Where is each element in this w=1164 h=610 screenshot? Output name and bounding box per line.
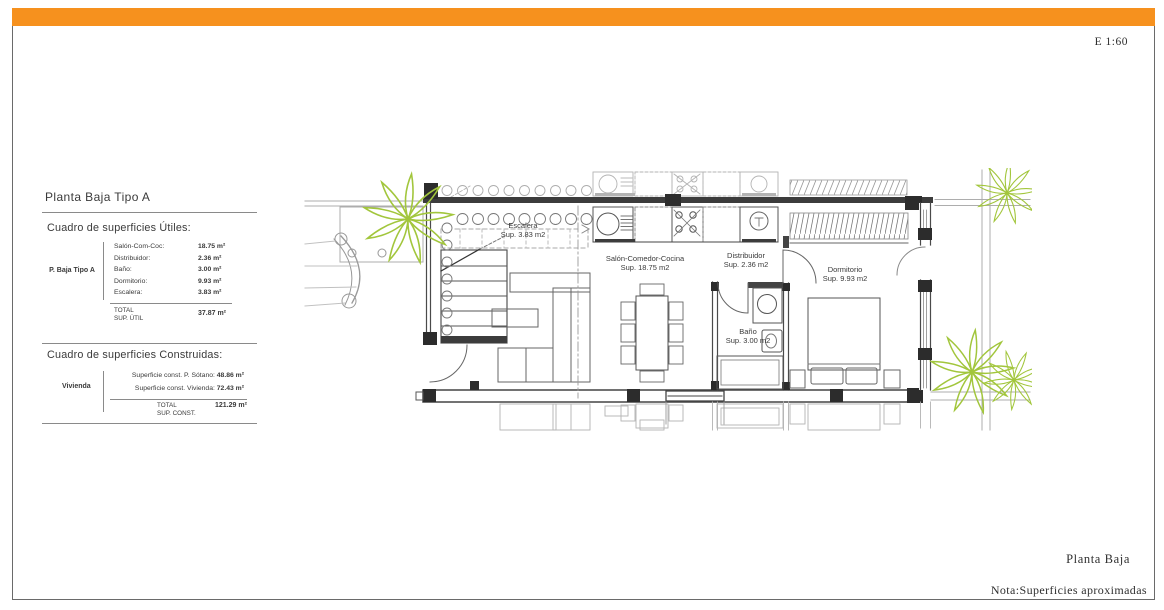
- built-areas-heading: Cuadro de superficies Construidas:: [47, 349, 222, 361]
- plant-icon: [931, 330, 1014, 414]
- row-value: 3.00 m²: [198, 266, 221, 273]
- total-subword: SUP. ÚTIL: [114, 315, 143, 323]
- total-label: TOTAL SUP. ÚTIL: [114, 307, 143, 322]
- built-areas-table: Vivienda Superficie const. P. Sótano: 48…: [42, 370, 252, 397]
- divider: [42, 343, 257, 344]
- table-row: Salón-Com-Coc: 18.75 m²: [114, 243, 252, 255]
- divider: [42, 423, 257, 424]
- total-subword: SUP. CONST.: [157, 410, 196, 418]
- total-word: TOTAL: [157, 402, 196, 410]
- plant-icon: [976, 162, 1038, 224]
- neighbor-unit-above: [442, 172, 907, 197]
- table-row: Superficie const. P. Sótano: 48.86 m²: [114, 372, 244, 385]
- drawing-sheet: E 1:60: [0, 0, 1164, 610]
- table-row: Superficie const. Vivienda: 72.43 m²: [114, 385, 244, 398]
- room-area: Sup. 3.83 m2: [453, 230, 593, 239]
- room-area: Sup. 3.00 m2: [678, 336, 818, 345]
- row-label: Escalera:: [114, 289, 198, 296]
- row-label: Baño:: [114, 266, 198, 273]
- row-value: 3.83 m²: [198, 289, 221, 296]
- total-value: 37.87 m²: [198, 310, 226, 317]
- row-label: Superficie const. P. Sótano:: [132, 372, 215, 379]
- room-name: Escalera: [453, 221, 593, 230]
- table-row: Dormitorio: 9.93 m²: [114, 278, 252, 290]
- room-name: Dormitorio: [775, 265, 915, 274]
- room-name: Baño: [678, 327, 818, 336]
- row-label: Salón-Com-Coc:: [114, 243, 198, 250]
- row-label: Distribuidor:: [114, 255, 198, 262]
- divider: [110, 303, 232, 304]
- room-label-dormitorio: Dormitorio Sup. 9.93 m2: [775, 265, 915, 283]
- floor-plan-drawing: [0, 0, 1164, 610]
- useful-areas-heading: Cuadro de superficies Útiles:: [47, 222, 191, 234]
- useful-areas-table: P. Baja Tipo A Salón-Com-Coc: 18.75 m² D…: [42, 240, 252, 301]
- sheet-note: Nota:Superficies aproximadas: [991, 583, 1147, 598]
- row-label: Superficie const. Vivienda:: [135, 385, 215, 392]
- sheet-title: Planta Baja: [1066, 552, 1130, 567]
- group-label: Vivienda: [62, 383, 102, 390]
- table-row: Baño: 3.00 m²: [114, 266, 252, 278]
- total-label: TOTAL SUP. CONST.: [157, 402, 196, 417]
- group-label: P. Baja Tipo A: [43, 267, 101, 274]
- row-value: 2.36 m²: [198, 255, 221, 262]
- row-value: 48.86 m²: [217, 372, 244, 379]
- room-area: Sup. 9.93 m2: [775, 274, 915, 283]
- panel-title: Planta Baja Tipo A: [45, 190, 150, 204]
- staircase: [441, 214, 592, 391]
- row-value: 72.43 m²: [217, 385, 244, 392]
- table-row: Escalera: 3.83 m²: [114, 289, 252, 301]
- neighbor-unit-below: [500, 402, 931, 430]
- total-value: 121.29 m²: [215, 402, 247, 409]
- room-label-bano: Baño Sup. 3.00 m2: [678, 327, 818, 345]
- plant-icon: [364, 174, 453, 264]
- kitchen: [593, 207, 778, 243]
- row-value: 9.93 m²: [198, 278, 221, 285]
- table-row: Distribuidor: 2.36 m²: [114, 255, 252, 267]
- divider: [103, 371, 104, 412]
- divider: [42, 212, 257, 213]
- total-word: TOTAL: [114, 307, 143, 315]
- row-value: 18.75 m²: [198, 243, 225, 250]
- living-furniture: [492, 273, 683, 382]
- divider: [110, 399, 247, 400]
- room-name: Distribuidor: [676, 251, 816, 260]
- bedroom: [790, 213, 908, 388]
- room-label-escalera: Escalera Sup. 3.83 m2: [453, 221, 593, 239]
- divider: [103, 242, 104, 300]
- row-label: Dormitorio:: [114, 278, 198, 285]
- plant-icon: [977, 342, 1052, 417]
